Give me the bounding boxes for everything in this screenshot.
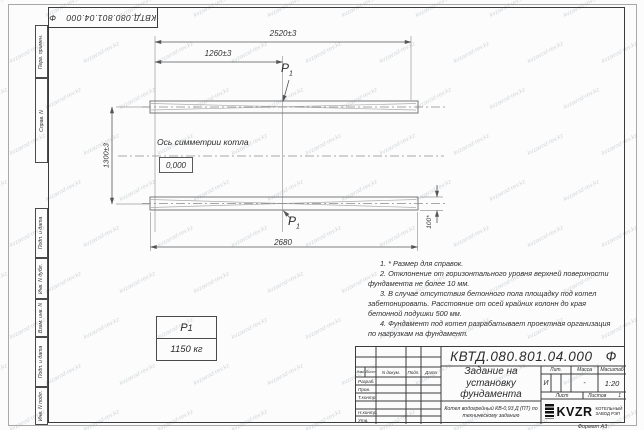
- drawing-sheet: kvzavod-rev.kzkvzavod-rev.kzkvzavod-rev.…: [0, 0, 644, 430]
- title-block: КВТД.080.801.04.000Ф Изм. Лист N докум. …: [355, 346, 625, 423]
- mass-header: Масса: [571, 366, 598, 374]
- row-n-kontr: Н.контр.: [356, 409, 376, 416]
- dim-total-length-label: 2680: [245, 238, 321, 247]
- dim-pad-height-label: 100*: [424, 205, 434, 239]
- sheets-total: Листов 1: [583, 392, 626, 399]
- note-2: 2. Отклонение от горизонтального уровня …: [368, 269, 620, 289]
- load-symbol-letter: P: [281, 61, 289, 75]
- note-3: 3. В случае отсутствия бетонного пола пл…: [368, 289, 620, 319]
- designation-suffix: Ф: [606, 349, 617, 364]
- load-symbol-top: P1: [281, 61, 293, 77]
- designation-number: КВТД.080.801.04.000: [450, 349, 593, 364]
- title-block-designation: КВТД.080.801.04.000Ф: [441, 347, 626, 366]
- scale-header: Масштаб: [598, 366, 626, 374]
- centerlines: [118, 107, 446, 204]
- scale-value: 1:20: [598, 374, 626, 392]
- load-symbol-letter: P: [180, 322, 187, 334]
- row-t-kontr: Т.контр.: [356, 393, 376, 401]
- logo-text: KVZR: [557, 405, 593, 419]
- logo-caption: КОТЕЛЬНЫЙ ЗАВОД РЭП: [596, 407, 623, 417]
- sheet-label: Лист: [541, 392, 583, 399]
- logo-caption-line2: ЗАВОД РЭП: [596, 412, 623, 417]
- company-logo: KVZR КОТЕЛЬНЫЙ ЗАВОД РЭП: [542, 400, 625, 423]
- format-label: Формат А3: [560, 423, 625, 430]
- load-table-value: 1150 кг: [157, 339, 216, 360]
- load-value-table: P1 1150 кг: [156, 316, 217, 361]
- document-title: Задание на установку фундамента: [443, 366, 539, 401]
- row-razrab: Разраб.: [356, 377, 376, 385]
- col-n-dokum: N докум.: [376, 367, 406, 377]
- row-utv: Утв.: [356, 416, 376, 424]
- col-podp: Подп.: [406, 367, 421, 377]
- mass-value: -: [571, 374, 598, 392]
- col-list: Лист: [365, 367, 376, 377]
- foundation-rails: [150, 101, 418, 210]
- col-izm: Изм.: [356, 367, 365, 377]
- load-table-symbol: P1: [157, 317, 216, 339]
- note-1: 1. * Размер для справок.: [368, 259, 620, 269]
- dim-half-width-label: 1260±3: [180, 49, 256, 58]
- load-symbol-letter: P: [288, 214, 296, 228]
- rail-chamfer-lines: [151, 104, 416, 208]
- zero-elevation-box: 0,000: [159, 157, 193, 173]
- lit-header: Лит.: [541, 366, 571, 374]
- zero-elevation-value: 0,000: [166, 161, 186, 170]
- load-symbol-subscript: 1: [296, 223, 300, 230]
- load-symbol-subscript: 1: [289, 70, 293, 77]
- dim-height-between-label: 1300±3: [101, 134, 112, 178]
- load-symbol-subscript: 1: [188, 323, 193, 333]
- notes-block: 1. * Размер для справок. 2. Отклонение о…: [368, 259, 620, 339]
- sheets-total-value: 1: [618, 393, 621, 399]
- load-symbol-bottom: P1: [288, 214, 300, 230]
- dim-overall-width-label: 2520±3: [245, 29, 321, 38]
- lit-value: И: [541, 374, 551, 392]
- document-subtitle: Котел водогрейный КВ-0,93 Д (ПТ) по техн…: [444, 401, 538, 424]
- logo-stripes-icon: [545, 404, 554, 419]
- col-data: Дата: [421, 367, 441, 377]
- sheets-total-label: Листов: [588, 393, 606, 399]
- symmetry-axis-label: Ось симметрии котла: [157, 137, 249, 147]
- note-4: 4. Фундамент под котел разрабатывает про…: [368, 319, 620, 339]
- row-prov: Пров.: [356, 385, 376, 393]
